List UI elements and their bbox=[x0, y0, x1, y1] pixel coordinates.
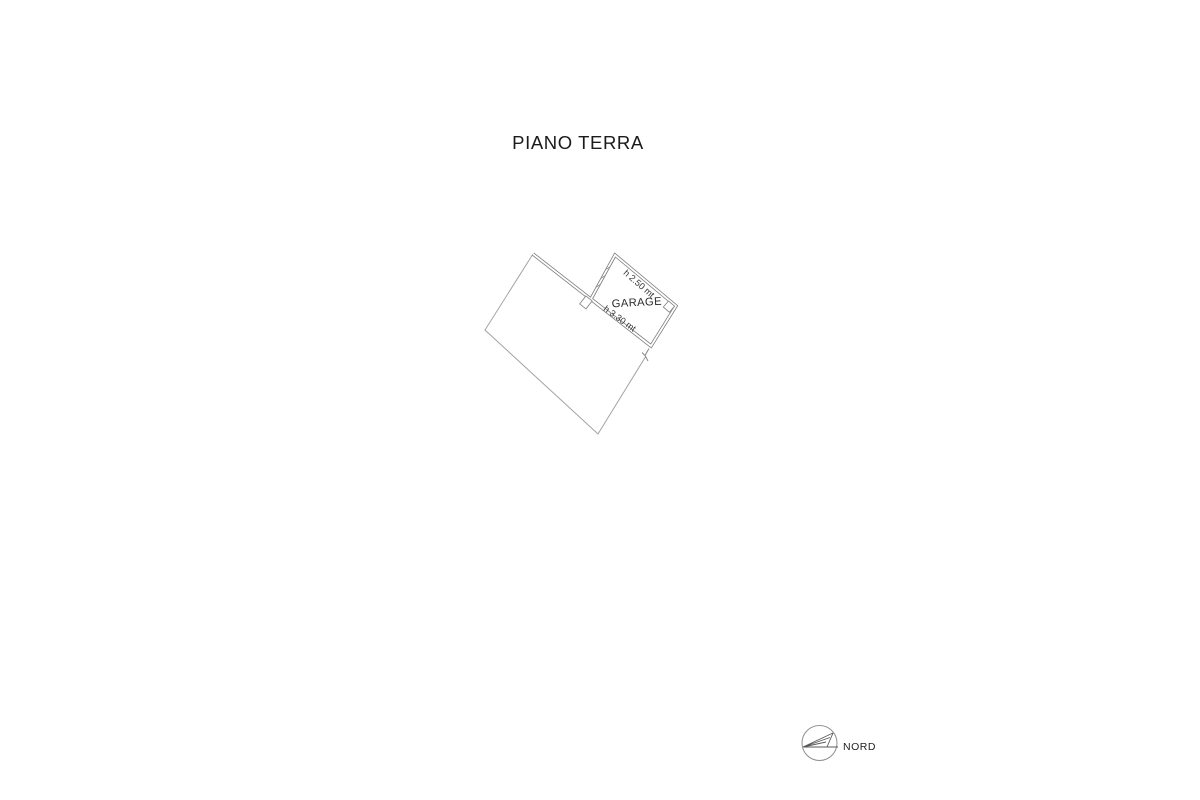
garage-room-label: GARAGE bbox=[611, 296, 662, 311]
north-label: NORD bbox=[843, 741, 876, 753]
north-compass: NORD bbox=[802, 726, 876, 761]
page-title: PIANO TERRA bbox=[512, 132, 644, 153]
floor-plan-drawing: PIANO TERRA GARAGE h 2.50 mt h 3.30 mt N… bbox=[0, 0, 1200, 800]
wall-end-return bbox=[642, 349, 649, 362]
north-arrow-icon bbox=[803, 733, 838, 747]
